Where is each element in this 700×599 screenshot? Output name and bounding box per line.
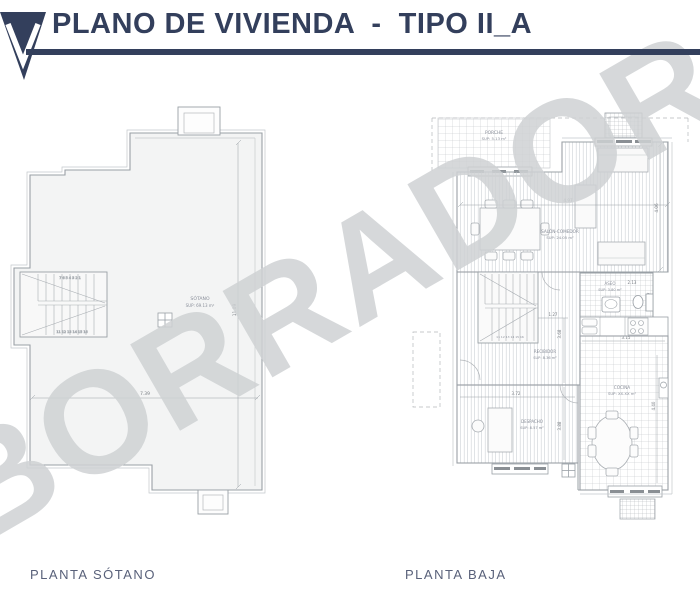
stair-numbers: 11 12 13 14 15 16 — [496, 335, 524, 339]
cocina-window-band — [608, 486, 662, 519]
dim-salon-height: 4.06 — [654, 203, 659, 213]
caption-planta-baja: PLANTA BAJA — [405, 567, 507, 582]
room-name: RECIBIDOR — [534, 349, 556, 354]
aseo-sink — [602, 297, 620, 312]
chimney-top — [178, 107, 220, 135]
header-rule — [26, 49, 700, 55]
exterior-step — [620, 499, 655, 519]
room-name: COCINA — [614, 385, 631, 390]
room-area: SUP: 8.57 m² — [520, 426, 544, 430]
sheet-title: PLANO DE VIVIENDA - TIPO II_A — [52, 8, 532, 41]
chimney-bottom — [198, 490, 228, 514]
dim-aseo-width: 2.13 — [628, 280, 637, 285]
caption-planta-sotano: PLANTA SÓTANO — [30, 567, 156, 582]
company-logo-icon — [0, 4, 48, 84]
sofa-bottom — [598, 242, 645, 265]
dim-recibidor-height: 3.68 — [557, 329, 562, 338]
small-window-symbol-icon — [562, 464, 575, 477]
stair-numbers-top: 7 6 5 4 3 2 1 — [59, 276, 81, 280]
plan-sheet: PLANO DE VIVIENDA - TIPO II_A BORRADOR — [0, 0, 700, 599]
room-area: SUP: XX.XX m² — [608, 391, 636, 396]
kitchen-counter — [580, 317, 668, 336]
desk — [488, 408, 512, 452]
cocina-room: COCINA SUP: XX.XX m² 4.40 — [580, 336, 668, 490]
despacho-window-band — [492, 464, 548, 474]
room-name: DESPACHO — [521, 419, 543, 424]
room-name: ASEO — [605, 281, 616, 286]
room-area: SUP: 3.80 m² — [598, 288, 622, 292]
dim-recibidor-width: 1.27 — [549, 312, 558, 317]
dim-cocina-height: 4.40 — [651, 401, 656, 410]
exterior-landing-dashed — [413, 332, 440, 407]
room-area: SUP: 8.36 m² — [533, 356, 557, 360]
dim-despacho-height: 3.88 — [557, 421, 562, 430]
appliance — [659, 378, 668, 398]
stove — [628, 318, 648, 335]
dim-despacho-width: 3.72 — [512, 391, 521, 396]
desk-chair — [472, 420, 484, 432]
